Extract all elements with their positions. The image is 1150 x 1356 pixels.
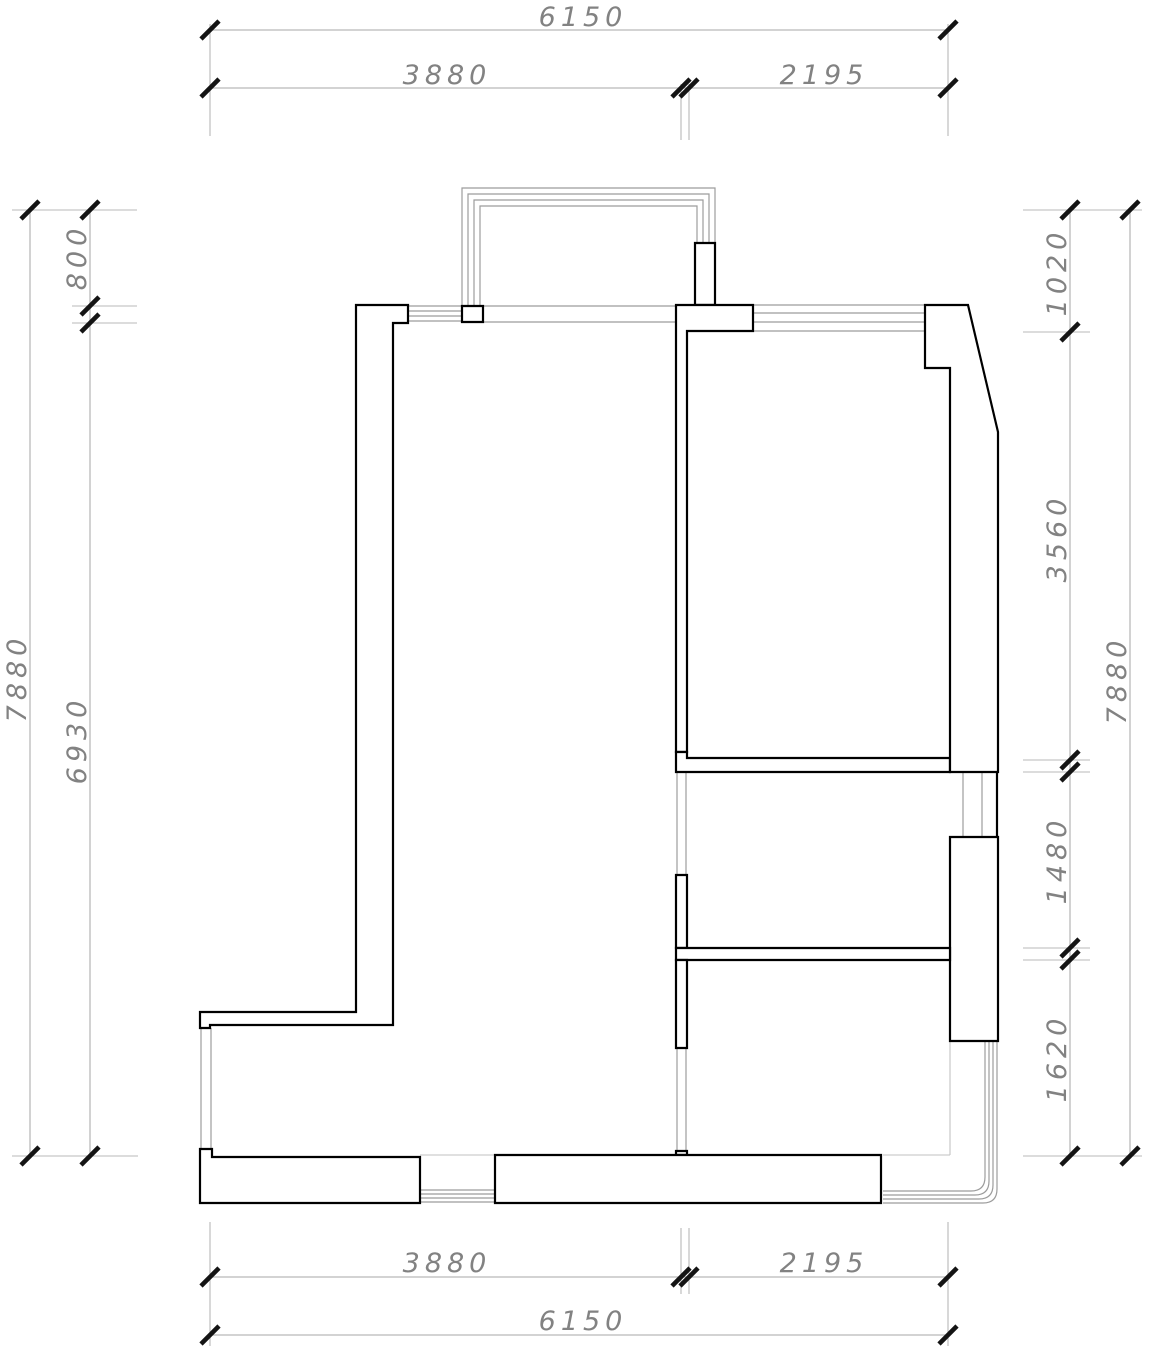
balcony-railing-line bbox=[474, 200, 703, 305]
exterior-wall-right-mid bbox=[950, 837, 998, 1041]
dim-label-top-right-segment: 2195 bbox=[780, 60, 869, 91]
dim-label-right-segment-4: 1620 bbox=[1042, 1014, 1073, 1103]
dim-label-bottom-right-segment: 2195 bbox=[780, 1248, 869, 1279]
interior-wall-vertical-upper bbox=[676, 305, 753, 752]
top-window-left bbox=[408, 306, 462, 321]
bottom-wall-middle bbox=[495, 1155, 881, 1203]
window-line bbox=[883, 1041, 989, 1195]
balcony-pillar bbox=[695, 243, 715, 305]
window-line bbox=[883, 1041, 993, 1199]
partition-wall-lower bbox=[676, 948, 950, 960]
dim-label-left-top-segment: 800 bbox=[62, 224, 93, 291]
bottom-wall-left bbox=[200, 1149, 420, 1203]
partition-wall-upper bbox=[676, 752, 950, 772]
window-mullion-post bbox=[462, 306, 483, 322]
window-line bbox=[883, 1041, 985, 1191]
balcony-railing-line bbox=[468, 194, 709, 305]
balcony-door-opening bbox=[483, 306, 676, 322]
plan-layer bbox=[200, 188, 998, 1203]
window-line bbox=[883, 1041, 997, 1203]
dim-label-left-bottom-segment: 6930 bbox=[62, 696, 93, 785]
floor-plan-canvas: 6150 3880 2195 3880 2195 6150 7880 800 6… bbox=[0, 0, 1150, 1356]
floor-plan-drawing: 6150 3880 2195 3880 2195 6150 7880 800 6… bbox=[0, 0, 1150, 1356]
interior-door-opening-lower bbox=[677, 1048, 686, 1151]
dim-label-left-overall: 7880 bbox=[2, 634, 33, 723]
balcony-railing-line bbox=[480, 206, 697, 305]
dim-label-top-left-segment: 3880 bbox=[403, 60, 492, 91]
top-window-right bbox=[753, 305, 925, 331]
dim-label-bottom-left-segment: 3880 bbox=[403, 1248, 492, 1279]
interior-door-opening-upper bbox=[677, 773, 686, 875]
dim-label-right-segment-3: 1480 bbox=[1042, 816, 1073, 905]
corner-bay-window bbox=[883, 1041, 997, 1203]
right-wall-window bbox=[963, 772, 997, 837]
exterior-wall-right-top bbox=[925, 305, 998, 772]
dim-label-right-overall: 7880 bbox=[1102, 636, 1133, 725]
dim-label-right-segment-1: 1020 bbox=[1042, 228, 1073, 317]
bottom-window bbox=[420, 1155, 495, 1202]
interior-wall-stem-b bbox=[676, 960, 687, 1048]
dim-label-bottom-overall: 6150 bbox=[539, 1306, 628, 1337]
dim-label-top-overall: 6150 bbox=[539, 2, 628, 33]
interior-wall-stem-a bbox=[676, 875, 687, 948]
exterior-wall-left bbox=[200, 305, 408, 1028]
left-door-opening bbox=[201, 1028, 211, 1149]
dim-label-right-segment-2: 3560 bbox=[1042, 494, 1073, 583]
balcony-railing bbox=[462, 188, 715, 305]
